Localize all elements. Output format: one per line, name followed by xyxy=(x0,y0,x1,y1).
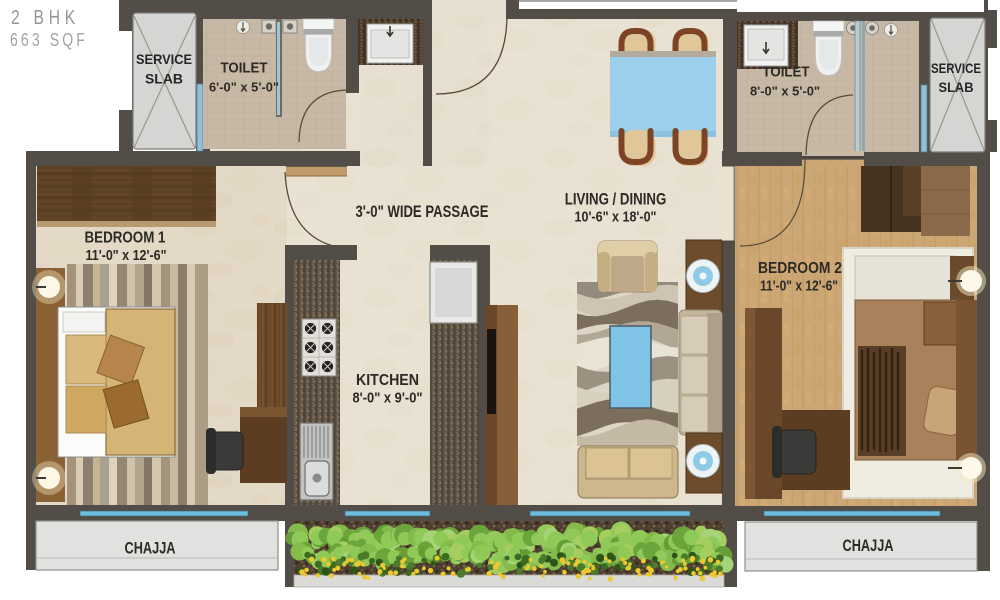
svg-text:SERVICE: SERVICE xyxy=(931,60,981,76)
svg-text:TOILET: TOILET xyxy=(763,65,810,81)
svg-text:BEDROOM 2: BEDROOM 2 xyxy=(758,260,842,277)
svg-text:SLAB: SLAB xyxy=(939,79,974,95)
svg-text:CHAJJA: CHAJJA xyxy=(125,540,176,558)
svg-text:SERVICE: SERVICE xyxy=(136,51,192,67)
svg-text:11'-0" x 12'-6": 11'-0" x 12'-6" xyxy=(760,278,838,295)
svg-text:BEDROOM 1: BEDROOM 1 xyxy=(85,230,166,247)
svg-text:SLAB: SLAB xyxy=(145,71,183,87)
svg-text:TOILET: TOILET xyxy=(221,61,268,77)
svg-text:11'-0" x 12'-6": 11'-0" x 12'-6" xyxy=(86,247,167,264)
svg-text:LIVING / DINING: LIVING / DINING xyxy=(565,191,667,209)
svg-text:6'-0" x 5'-0": 6'-0" x 5'-0" xyxy=(209,81,279,95)
svg-text:CHAJJA: CHAJJA xyxy=(843,537,894,555)
svg-text:8'-0" x 9'-0": 8'-0" x 9'-0" xyxy=(353,390,423,407)
svg-text:2 BHK: 2 BHK xyxy=(11,7,80,29)
svg-text:KITCHEN: KITCHEN xyxy=(356,372,419,389)
svg-text:8'-0" x 5'-0": 8'-0" x 5'-0" xyxy=(750,85,820,99)
svg-text:663 SQF: 663 SQF xyxy=(10,30,88,50)
svg-text:3'-0" WIDE PASSAGE: 3'-0" WIDE PASSAGE xyxy=(356,203,489,221)
svg-text:10'-6" x 18'-0": 10'-6" x 18'-0" xyxy=(575,209,657,226)
